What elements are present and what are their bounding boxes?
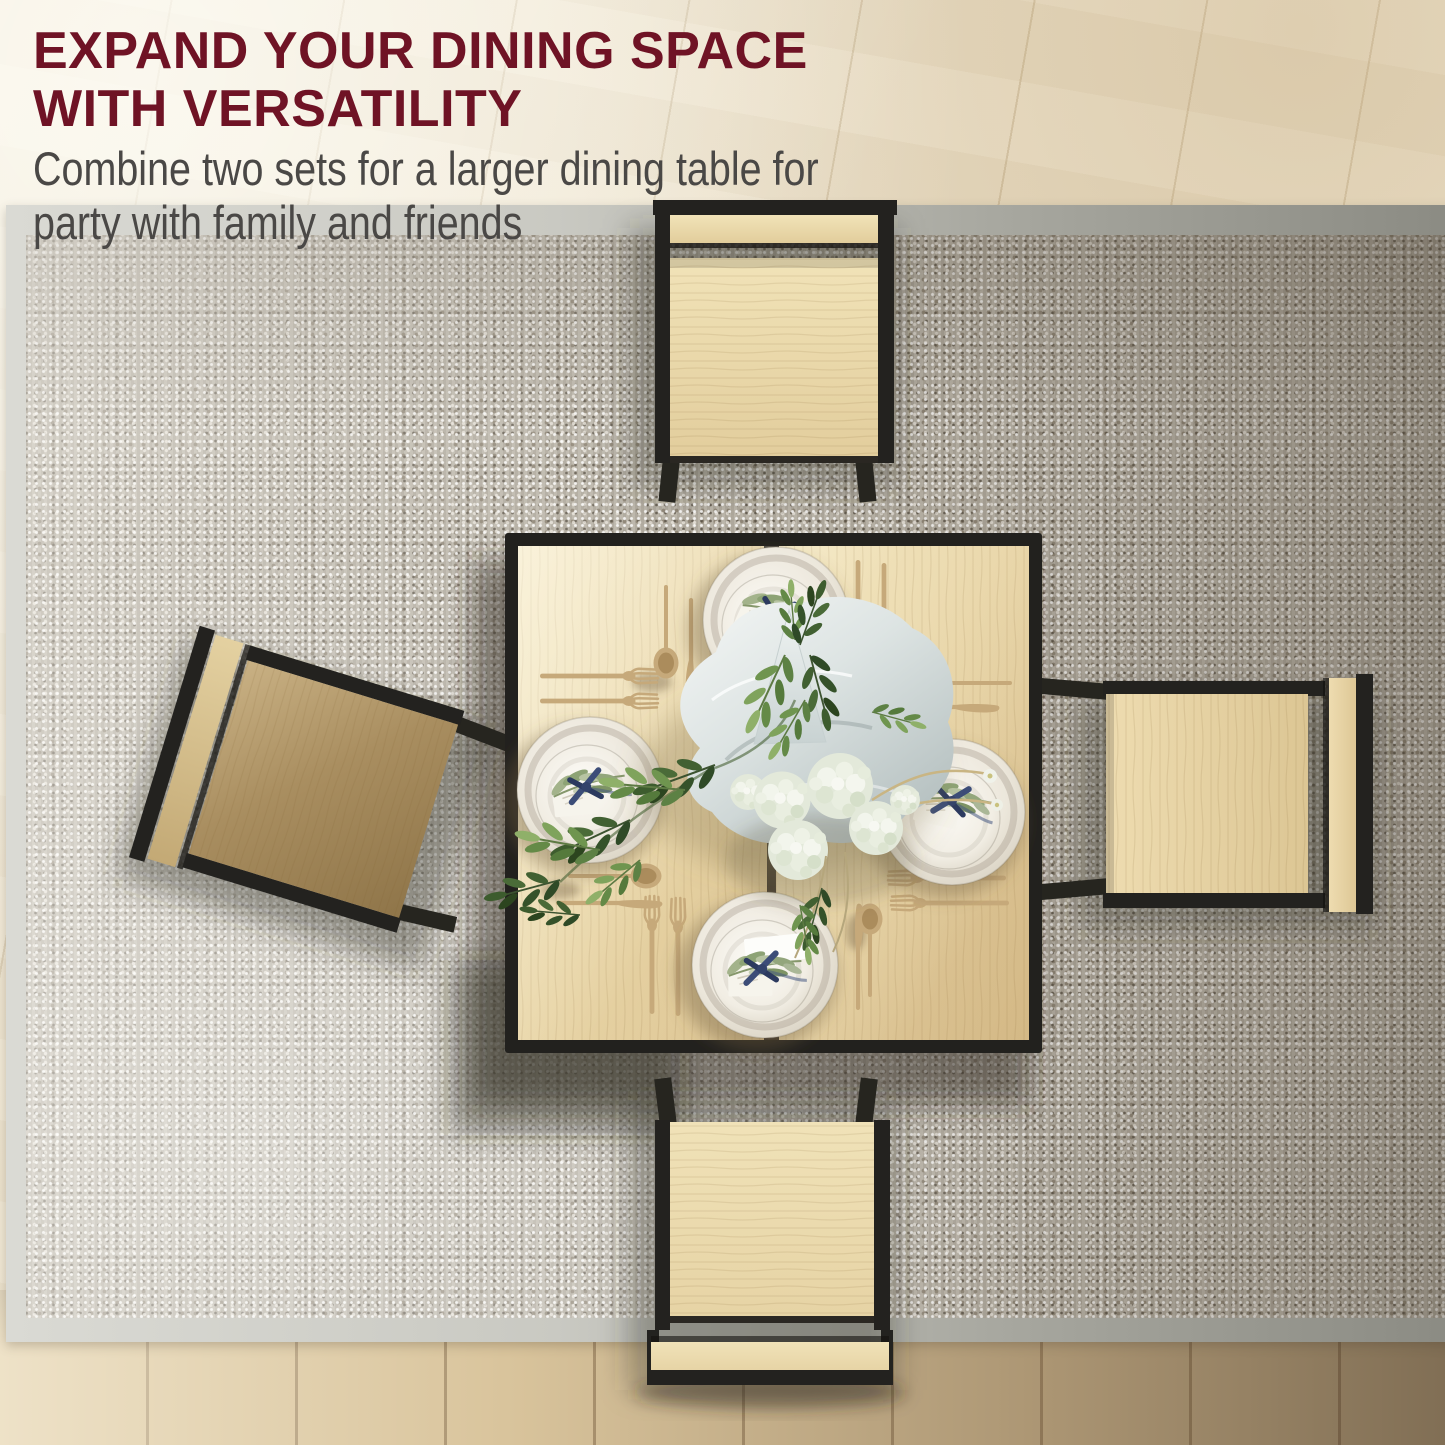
subheadline: Combine two sets for a larger dining tab…	[33, 142, 1209, 250]
stool-bottom	[647, 1077, 893, 1385]
subheadline-line-1: Combine two sets for a larger dining tab…	[33, 142, 1209, 196]
product-image: EXPAND YOUR DINING SPACE WITH VERSATILIT…	[0, 0, 1445, 1445]
headline-line-2: WITH VERSATILITY	[33, 80, 1133, 138]
stool-right-backrest	[1329, 678, 1358, 912]
subheadline-line-2: party with family and friends	[33, 196, 1209, 250]
stool-bottom-backrest	[651, 1342, 889, 1372]
headline: EXPAND YOUR DINING SPACE WITH VERSATILIT…	[33, 22, 1133, 138]
headline-line-1: EXPAND YOUR DINING SPACE	[33, 22, 1133, 80]
